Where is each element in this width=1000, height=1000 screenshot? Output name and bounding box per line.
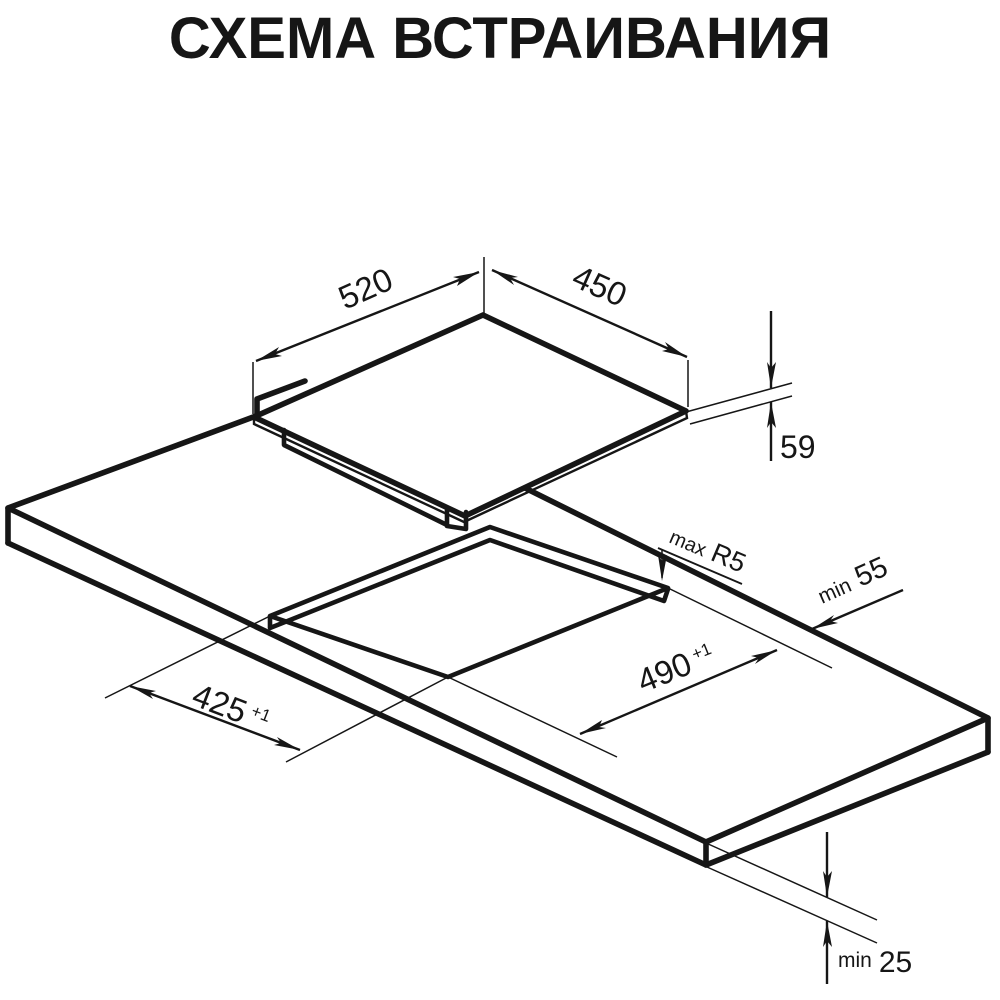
- arrow-cutout-width-left: [130, 686, 156, 699]
- dimension-lines: [130, 270, 903, 984]
- hob-outline: [254, 315, 687, 529]
- dim-cutout-length-tolerance: +1: [689, 639, 714, 664]
- dim-thickness-prefix: min: [838, 949, 872, 972]
- dim-thickness-value: 25: [879, 946, 912, 979]
- dim-hob-depth-label: 450: [567, 258, 632, 314]
- arrow-hob-depth-right: [662, 342, 687, 357]
- dim-corner-radius-prefix: max: [666, 526, 709, 561]
- ext-cutout-width-right: [286, 677, 448, 762]
- dim-cutout-width-label: 425+1: [187, 676, 274, 739]
- dim-cutout-length-label: 490+1: [632, 635, 720, 699]
- ext-hob-height-top: [686, 383, 792, 412]
- ext-thickness-top: [706, 843, 877, 920]
- dim-cutout-width-value: 425: [187, 676, 252, 730]
- installation-diagram: СХЕМА ВСТРАИВАНИЯ: [0, 0, 1000, 1000]
- countertop-outline: [8, 381, 988, 865]
- dim-thickness-label: min25: [838, 946, 912, 979]
- arrowheads: [130, 270, 838, 947]
- arrow-cutout-length-left: [580, 720, 606, 734]
- arrow-cutout-width-right: [274, 737, 300, 750]
- dim-rear-clearance-label: min55: [812, 551, 893, 610]
- dim-hob-height-label: 59: [780, 429, 816, 465]
- hob-glass-top: [254, 315, 686, 516]
- dim-cutout-width-tolerance: +1: [249, 701, 274, 726]
- ext-cutout-length-left: [448, 677, 617, 757]
- countertop-top-face: [8, 416, 988, 842]
- hob-glass-thickness: [254, 411, 687, 522]
- page-title: СХЕМА ВСТРАИВАНИЯ: [169, 6, 831, 71]
- dim-rear-clearance-prefix: min: [815, 574, 855, 609]
- dim-rear-clearance-value: 55: [850, 551, 892, 593]
- dim-cutout-length-value: 490: [632, 645, 697, 700]
- arrow-hob-depth-left: [492, 270, 518, 285]
- arrow-hob-width-right: [453, 272, 479, 286]
- arrow-rear-clearance: [812, 615, 838, 629]
- arrow-hob-width-left: [256, 347, 282, 361]
- page: СХЕМА ВСТРАИВАНИЯ: [0, 0, 1000, 1000]
- ext-hob-height-bottom: [690, 396, 792, 424]
- cutout-inner-walls: [270, 540, 668, 628]
- arrow-cutout-length-right: [751, 650, 777, 664]
- cutout-outline: [270, 527, 668, 677]
- ext-thickness-bottom: [707, 867, 877, 943]
